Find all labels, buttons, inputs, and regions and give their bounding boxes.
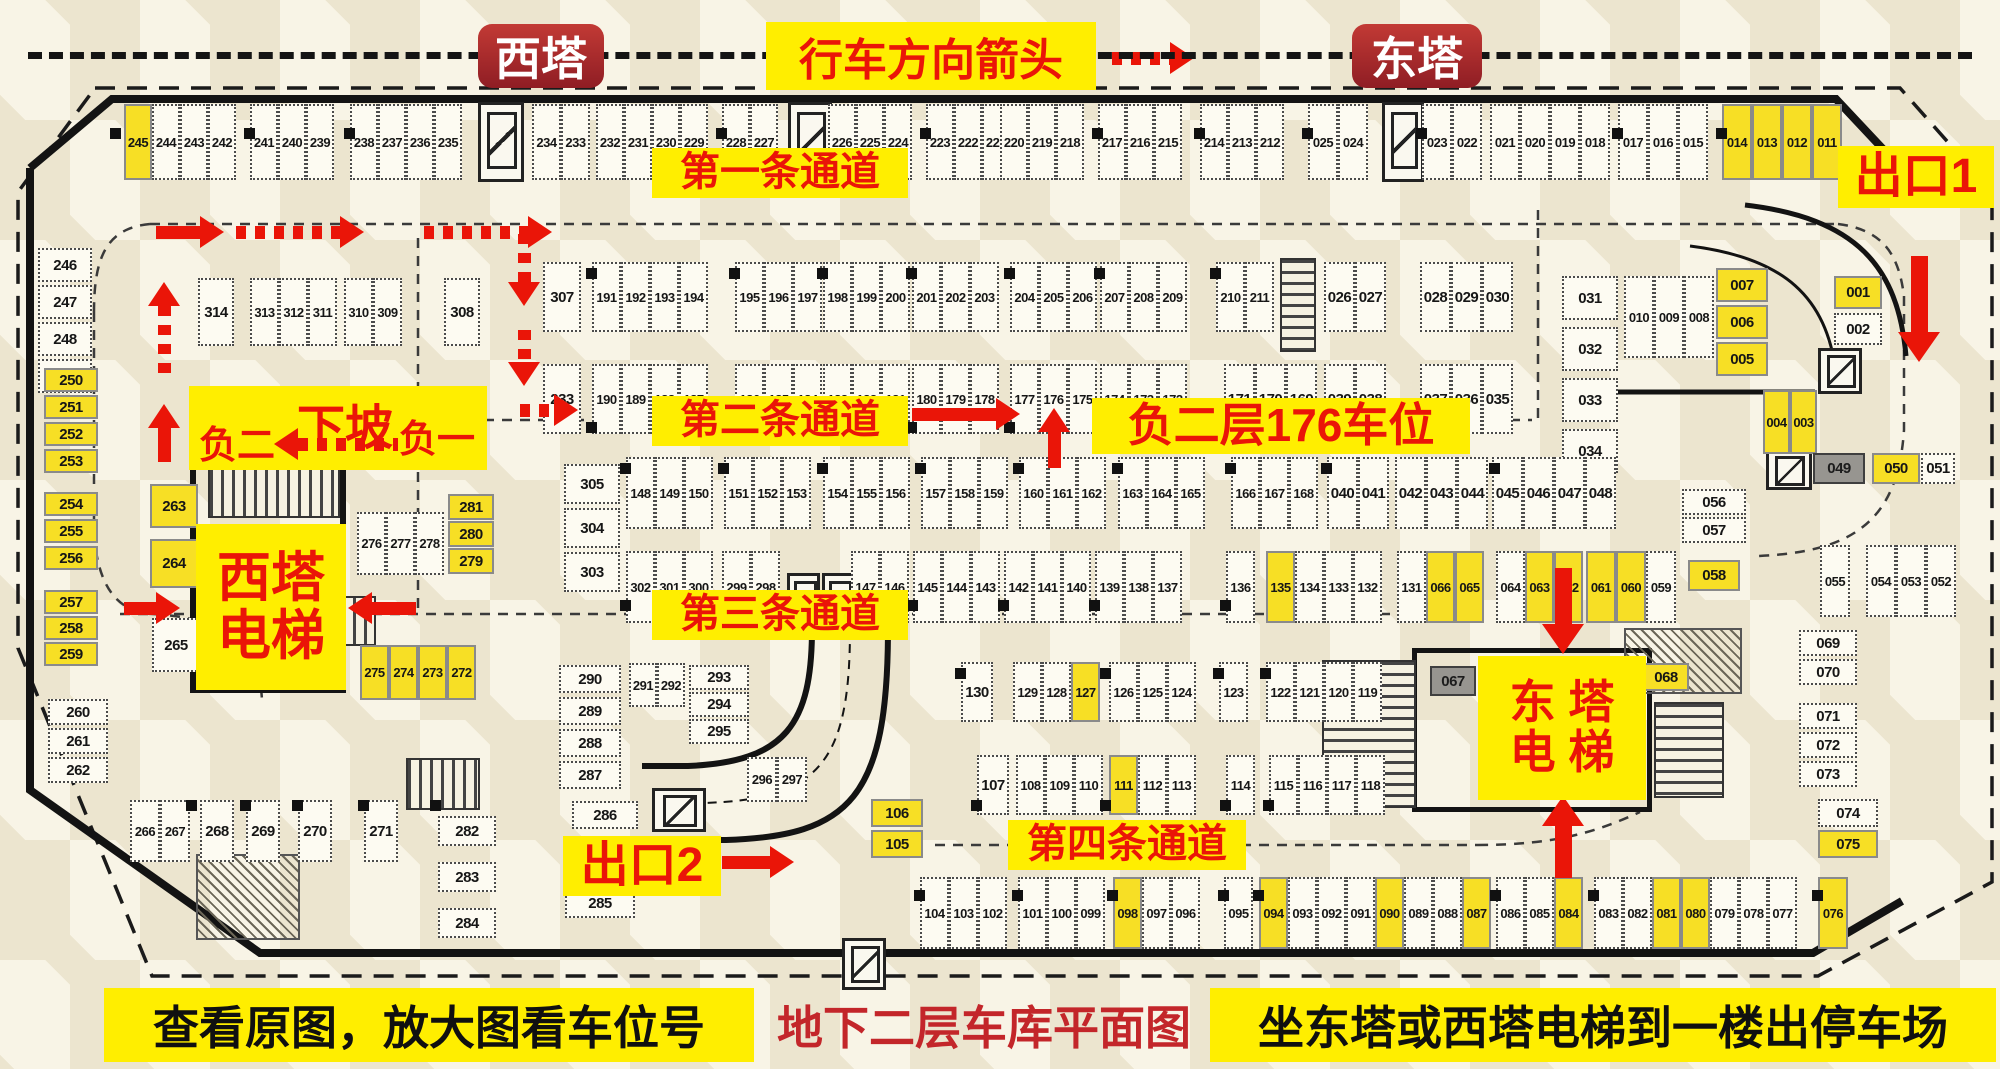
pillar <box>915 463 926 474</box>
parking-spot: 103 <box>949 877 978 949</box>
parking-spot: 048 <box>1585 457 1616 529</box>
parking-spot: 149 <box>655 457 684 529</box>
parking-spot: 307 <box>543 262 581 332</box>
parking-spot: 218 <box>1056 104 1084 180</box>
pillar <box>1004 268 1015 279</box>
arrow-shaft <box>236 226 340 239</box>
elevator-icon <box>1382 102 1424 182</box>
pillar <box>1013 463 1024 474</box>
right-arrow <box>912 398 1020 430</box>
parking-spot: 106 <box>871 799 923 827</box>
arrow-shaft <box>518 234 531 282</box>
parking-spot: 024 <box>1338 104 1368 180</box>
elevator-icon <box>1818 348 1862 394</box>
parking-spot: 143 <box>971 551 1000 623</box>
parking-spot: 282 <box>438 816 496 846</box>
parking-spot: 029 <box>1451 262 1482 332</box>
parking-spot: 246 <box>38 248 92 282</box>
stairs-icon <box>208 462 340 518</box>
parking-spot: 071 <box>1799 703 1857 729</box>
parking-spot: 102 <box>978 877 1007 949</box>
parking-spot: 057 <box>1682 517 1746 543</box>
parking-spot: 164 <box>1147 457 1176 529</box>
arrow-shaft <box>156 226 200 239</box>
lane-2-label: 第二条通道 <box>652 396 908 446</box>
parking-spot: 199 <box>852 262 881 332</box>
parking-spot: 111 <box>1109 755 1138 815</box>
footer-note-left: 查看原图，放大图看车位号 <box>104 988 754 1062</box>
parking-spot: 064 <box>1496 551 1525 623</box>
parking-spot: 311 <box>308 278 337 346</box>
parking-spot: 043 <box>1426 457 1457 529</box>
parking-spot: 053 <box>1896 545 1926 617</box>
arrow-shaft <box>1555 826 1572 878</box>
parking-spot: 127 <box>1071 662 1100 722</box>
pillar <box>1094 268 1105 279</box>
parking-spot: 019 <box>1550 104 1580 180</box>
left-arrow <box>348 592 416 624</box>
parking-spot: 153 <box>782 457 811 529</box>
parking-spot: 220 <box>1000 104 1028 180</box>
down-arrow <box>508 330 540 386</box>
parking-spot: 100 <box>1047 877 1076 949</box>
elevator-icon <box>478 102 524 182</box>
parking-spot: 129 <box>1013 662 1042 722</box>
pillar <box>1218 890 1229 901</box>
parking-spot: 083 <box>1594 877 1623 949</box>
parking-spot: 302 <box>626 551 655 623</box>
parking-spot: 265 <box>152 618 200 672</box>
parking-spot: 047 <box>1554 457 1585 529</box>
arrow-shaft <box>520 404 554 417</box>
parking-spot: 076 <box>1818 877 1848 949</box>
parking-spot: 101 <box>1018 877 1047 949</box>
parking-spot: 135 <box>1266 551 1295 623</box>
parking-spot: 252 <box>44 422 98 446</box>
elevator-icon <box>1766 450 1812 490</box>
arrow-head <box>770 846 794 878</box>
lane-3-label: 第三条通道 <box>652 590 908 640</box>
parking-spot: 313 <box>250 278 279 346</box>
parking-spot: 097 <box>1142 877 1171 949</box>
parking-spot: 206 <box>1068 262 1097 332</box>
parking-spot: 046 <box>1523 457 1554 529</box>
parking-spot: 051 <box>1921 453 1955 484</box>
parking-spot: 273 <box>418 645 447 700</box>
parking-spot: 266 <box>130 800 160 862</box>
parking-spot: 293 <box>689 665 749 690</box>
parking-spot: 028 <box>1420 262 1451 332</box>
parking-spot: 088 <box>1433 877 1462 949</box>
parking-spot: 006 <box>1716 305 1768 339</box>
parking-spot: 162 <box>1077 457 1106 529</box>
parking-spot: 208 <box>1129 262 1158 332</box>
arrow-head <box>348 592 372 624</box>
parking-spot: 133 <box>1324 551 1353 623</box>
parking-spot: 054 <box>1866 545 1896 617</box>
parking-spot: 080 <box>1681 877 1710 949</box>
parking-spot: 126 <box>1109 662 1138 722</box>
parking-spot: 033 <box>1562 378 1618 422</box>
parking-spot: 010 <box>1624 276 1654 358</box>
parking-spot: 277 <box>386 512 415 575</box>
pillar <box>716 128 727 139</box>
parking-spot: 234 <box>532 104 561 180</box>
parking-spot: 223 <box>926 104 954 180</box>
parking-spot: 215 <box>1154 104 1182 180</box>
parking-spot: 245 <box>124 104 152 180</box>
parking-spot: 073 <box>1799 761 1857 787</box>
pillar <box>586 268 597 279</box>
parking-spot: 052 <box>1926 545 1956 617</box>
parking-spot: 025 <box>1308 104 1338 180</box>
parking-spot: 165 <box>1176 457 1205 529</box>
pillar <box>1416 128 1427 139</box>
arrow-shaft <box>1911 256 1928 332</box>
parking-spot: 314 <box>198 278 234 346</box>
pillar <box>1489 463 1500 474</box>
arrow-head <box>156 592 180 624</box>
parking-spot: 023 <box>1422 104 1452 180</box>
parking-spot: 091 <box>1346 877 1375 949</box>
pillar <box>1263 800 1274 811</box>
parking-spot: 309 <box>373 278 402 346</box>
pillar <box>1812 890 1823 901</box>
parking-spot: 084 <box>1554 877 1583 949</box>
arrow-head <box>1898 332 1940 362</box>
parking-spot: 068 <box>1643 663 1689 691</box>
west-tower-badge: 西塔 <box>478 24 604 88</box>
parking-spot: 270 <box>298 800 332 862</box>
arrow-head <box>148 404 180 428</box>
parking-spot: 303 <box>564 552 620 592</box>
parking-spot: 152 <box>753 457 782 529</box>
parking-spot: 099 <box>1076 877 1105 949</box>
arrow-head <box>508 362 540 386</box>
parking-spot: 090 <box>1375 877 1404 949</box>
pillar <box>1210 268 1221 279</box>
pillar <box>292 800 303 811</box>
parking-spot: 086 <box>1496 877 1525 949</box>
parking-spot: 065 <box>1455 551 1484 623</box>
parking-spot: 089 <box>1404 877 1433 949</box>
parking-spot: 117 <box>1327 755 1356 815</box>
parking-spot: 281 <box>448 494 494 520</box>
parking-spot: 167 <box>1260 457 1289 529</box>
parking-spot: 055 <box>1820 545 1850 617</box>
arrow-shaft <box>158 428 171 462</box>
parking-spot: 079 <box>1710 877 1739 949</box>
parking-spot: 014 <box>1722 104 1752 180</box>
parking-spot: 236 <box>406 104 434 180</box>
arrow-shaft <box>518 330 531 362</box>
parking-spot: 291 <box>629 663 657 707</box>
parking-spot: 211 <box>1245 262 1274 332</box>
arrow-shaft <box>124 602 156 615</box>
arrow-head <box>996 398 1020 430</box>
parking-spot: 112 <box>1138 755 1167 815</box>
parking-spot: 141 <box>1033 551 1062 623</box>
arrow-shaft <box>1555 568 1572 624</box>
lane-4-label: 第四条通道 <box>1008 820 1246 870</box>
pillar <box>1302 128 1313 139</box>
arrow-head <box>200 216 224 248</box>
parking-spot: 021 <box>1490 104 1520 180</box>
pillar <box>1220 800 1231 811</box>
up-arrow <box>1542 796 1584 878</box>
parking-spot: 070 <box>1799 659 1857 685</box>
parking-spot: 098 <box>1113 877 1142 949</box>
parking-spot: 104 <box>920 877 949 949</box>
pillar <box>907 600 918 611</box>
parking-spot: 035 <box>1482 364 1513 434</box>
right-arrow <box>520 394 578 426</box>
parking-spot: 279 <box>448 548 494 574</box>
parking-spot: 050 <box>1872 453 1920 484</box>
pillar <box>344 128 355 139</box>
right-arrow <box>236 216 364 248</box>
pillar <box>1112 463 1123 474</box>
parking-spot: 222 <box>954 104 982 180</box>
parking-spot: 085 <box>1525 877 1554 949</box>
footer-title: 地下二层车库平面图 <box>756 988 1212 1062</box>
parking-spot: 002 <box>1834 313 1882 345</box>
parking-spot: 244 <box>152 104 180 180</box>
parking-spot: 269 <box>246 800 280 862</box>
pillar <box>1260 668 1271 679</box>
arrow-shaft <box>722 856 770 869</box>
parking-spot: 254 <box>44 492 98 516</box>
parking-spot: 124 <box>1167 662 1196 722</box>
parking-spot: 128 <box>1042 662 1071 722</box>
parking-spot: 194 <box>679 262 708 332</box>
parking-spot: 292 <box>657 663 685 707</box>
parking-spot: 012 <box>1782 104 1812 180</box>
arrow-head <box>148 282 180 306</box>
pillar <box>244 128 255 139</box>
pillar <box>971 800 982 811</box>
parking-spot: 310 <box>344 278 373 346</box>
parking-spot: 134 <box>1295 551 1324 623</box>
parking-spot: 075 <box>1818 830 1878 858</box>
pillar <box>718 463 729 474</box>
parking-spot: 219 <box>1028 104 1056 180</box>
arrow-head <box>1542 624 1584 654</box>
pillar <box>1100 668 1111 679</box>
parking-spot: 056 <box>1682 489 1746 515</box>
pillar <box>1012 890 1023 901</box>
pillar <box>1225 463 1236 474</box>
pillar <box>1213 668 1224 679</box>
parking-spot: 283 <box>438 862 496 892</box>
parking-spot: 109 <box>1045 755 1074 815</box>
parking-spot: 193 <box>650 262 679 332</box>
parking-spot: 290 <box>559 665 621 693</box>
parking-spot: 007 <box>1716 268 1768 302</box>
parking-spot: 248 <box>38 322 92 356</box>
hatched-area <box>196 854 300 940</box>
parking-spot: 255 <box>44 519 98 543</box>
parking-spot: 015 <box>1678 104 1708 180</box>
pillar <box>998 600 1009 611</box>
parking-spot: 138 <box>1124 551 1153 623</box>
up-arrow <box>148 282 180 374</box>
parking-spot: 268 <box>200 800 234 862</box>
west-tower-elevator-label: 西塔 电梯 <box>196 524 346 690</box>
parking-spot: 001 <box>1834 276 1882 309</box>
east-tower-badge: 东塔 <box>1352 24 1482 88</box>
parking-spot: 284 <box>438 908 496 938</box>
lane-1-label: 第一条通道 <box>652 148 908 198</box>
parking-spot: 072 <box>1799 732 1857 758</box>
parking-spot: 041 <box>1358 457 1389 529</box>
up-arrow <box>148 404 180 462</box>
parking-spot: 116 <box>1298 755 1327 815</box>
parking-spot: 214 <box>1200 104 1228 180</box>
parking-spot: 241 <box>250 104 278 180</box>
parking-spot: 274 <box>389 645 418 700</box>
parking-spot: 297 <box>777 757 807 802</box>
parking-spot: 136 <box>1226 551 1255 623</box>
right-arrow <box>156 216 224 248</box>
parking-spot: 031 <box>1562 276 1618 320</box>
parking-spot: 203 <box>970 262 999 332</box>
parking-spot: 132 <box>1353 551 1382 623</box>
parking-spot: 049 <box>1813 453 1865 484</box>
up-arrow <box>1038 408 1070 468</box>
parking-spot: 232 <box>596 104 624 180</box>
exit-2-label: 出口2 <box>563 836 721 896</box>
parking-spot: 261 <box>48 728 108 754</box>
parking-spot: 159 <box>979 457 1008 529</box>
parking-spot: 131 <box>1397 551 1426 623</box>
arrow-shaft <box>1048 432 1061 468</box>
pillar <box>1253 890 1264 901</box>
footer-note-right: 坐东塔或西塔电梯到一楼出停车场 <box>1210 988 1996 1062</box>
parking-spot: 093 <box>1288 877 1317 949</box>
parking-spot: 082 <box>1623 877 1652 949</box>
parking-spot: 262 <box>48 757 108 783</box>
parking-spot: 156 <box>881 457 910 529</box>
parking-spot: 242 <box>208 104 236 180</box>
stairs-icon <box>1654 702 1724 798</box>
parking-spot: 212 <box>1256 104 1284 180</box>
parking-spot: 264 <box>150 539 198 588</box>
parking-spot: 069 <box>1799 630 1857 656</box>
parking-spot: 295 <box>689 719 749 744</box>
parking-spot: 253 <box>44 449 98 473</box>
b2-capacity-label: 负二层176车位 <box>1092 398 1470 454</box>
pillar <box>817 268 828 279</box>
pillar <box>1092 128 1103 139</box>
floor-plan: 西塔 行车方向箭头 东塔 245244243242241240239238237… <box>0 0 2000 1069</box>
parking-spot: 235 <box>434 104 462 180</box>
parking-spot: 087 <box>1462 877 1491 949</box>
parking-spot: 196 <box>764 262 793 332</box>
parking-spot: 120 <box>1324 662 1353 722</box>
parking-spot: 278 <box>415 512 444 575</box>
parking-spot: 118 <box>1356 755 1385 815</box>
parking-spot: 296 <box>747 757 777 802</box>
parking-spot: 022 <box>1452 104 1482 180</box>
arrow-shaft <box>298 438 398 451</box>
parking-spot: 276 <box>357 512 386 575</box>
pillar <box>955 668 966 679</box>
parking-spot: 016 <box>1648 104 1678 180</box>
right-arrow <box>722 846 794 878</box>
parking-spot: 092 <box>1317 877 1346 949</box>
parking-spot: 247 <box>38 285 92 319</box>
parking-spot: 009 <box>1654 276 1684 358</box>
parking-spot: 239 <box>306 104 334 180</box>
parking-spot: 217 <box>1098 104 1126 180</box>
pillar <box>817 463 828 474</box>
pillar <box>1194 128 1205 139</box>
parking-spot: 233 <box>561 104 590 180</box>
stairs-icon <box>1280 258 1316 352</box>
parking-spot: 158 <box>950 457 979 529</box>
pillar <box>358 800 369 811</box>
parking-spot: 289 <box>559 697 621 725</box>
b1-level-label: 负一 <box>399 408 475 463</box>
right-arrow <box>124 592 180 624</box>
parking-spot: 258 <box>44 616 98 640</box>
parking-spot: 140 <box>1062 551 1091 623</box>
pillar <box>1100 800 1111 811</box>
parking-spot: 004 <box>1763 390 1790 454</box>
parking-spot: 312 <box>279 278 308 346</box>
parking-spot: 150 <box>684 457 713 529</box>
parking-spot: 209 <box>1158 262 1187 332</box>
parking-spot: 005 <box>1716 342 1768 376</box>
parking-spot: 121 <box>1295 662 1324 722</box>
parking-spot: 013 <box>1752 104 1782 180</box>
parking-spot: 168 <box>1289 457 1318 529</box>
parking-spot: 280 <box>448 521 494 547</box>
parking-spot: 032 <box>1562 327 1618 371</box>
parking-spot: 231 <box>624 104 652 180</box>
exit-1-label: 出口1 <box>1838 146 1994 208</box>
east-tower-elevator-label: 东 塔 电 梯 <box>1478 656 1646 800</box>
parking-spot: 271 <box>364 800 398 862</box>
parking-spot: 094 <box>1259 877 1288 949</box>
parking-spot: 205 <box>1039 262 1068 332</box>
parking-spot: 240 <box>278 104 306 180</box>
parking-spot: 058 <box>1688 560 1740 591</box>
parking-spot: 260 <box>48 699 108 725</box>
parking-spot: 095 <box>1224 877 1253 949</box>
parking-spot: 259 <box>44 642 98 666</box>
arrow-head <box>274 428 298 460</box>
parking-spot: 018 <box>1580 104 1610 180</box>
parking-spot: 139 <box>1095 551 1124 623</box>
arrow-head <box>1038 408 1070 432</box>
parking-spot: 202 <box>941 262 970 332</box>
pillar <box>1716 128 1727 139</box>
arrow-head <box>508 282 540 306</box>
arrow-shaft <box>912 408 996 421</box>
parking-spot: 216 <box>1126 104 1154 180</box>
parking-spot: 304 <box>564 508 620 548</box>
parking-spot: 308 <box>444 278 480 346</box>
arrow-shaft <box>158 306 171 374</box>
parking-spot: 272 <box>447 645 476 700</box>
pillar <box>1220 600 1231 611</box>
parking-spot: 294 <box>689 692 749 717</box>
parking-spot: 251 <box>44 395 98 419</box>
left-arrow <box>274 428 398 460</box>
parking-spot: 096 <box>1171 877 1200 949</box>
